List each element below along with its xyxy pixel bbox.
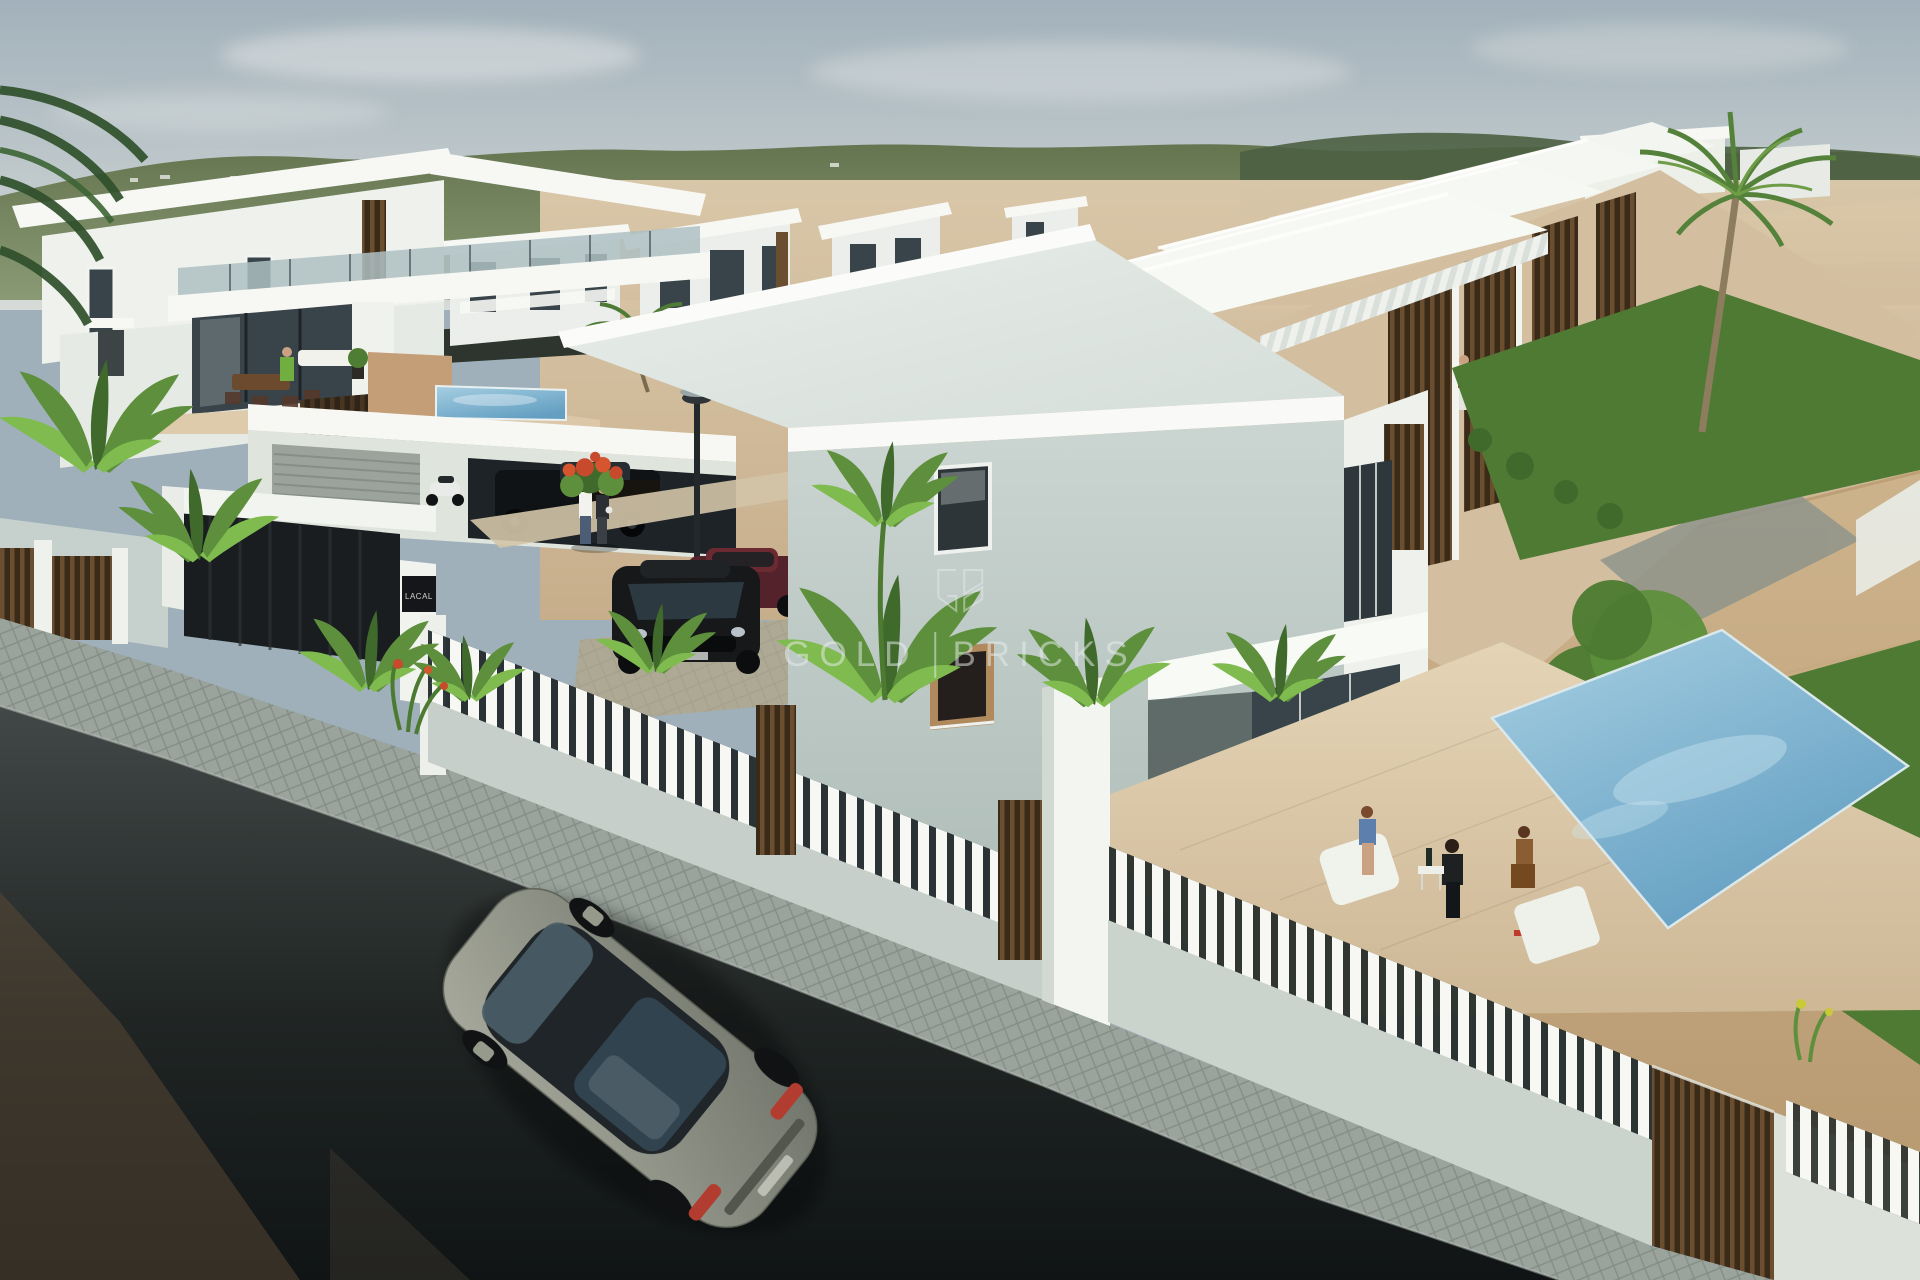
gate-plaque-text: LACAL — [405, 592, 433, 601]
wood-pier — [756, 705, 796, 855]
entry-door — [98, 330, 124, 376]
pool-left — [368, 352, 566, 424]
architectural-render: LACAL — [0, 0, 1920, 1280]
tall-window — [1344, 460, 1392, 622]
tall-white-pier — [1042, 676, 1110, 1026]
window-upper — [936, 464, 990, 553]
scene-canvas: LACAL — [0, 0, 1920, 1280]
wood-pier — [998, 800, 1042, 960]
seated-person — [282, 347, 292, 357]
